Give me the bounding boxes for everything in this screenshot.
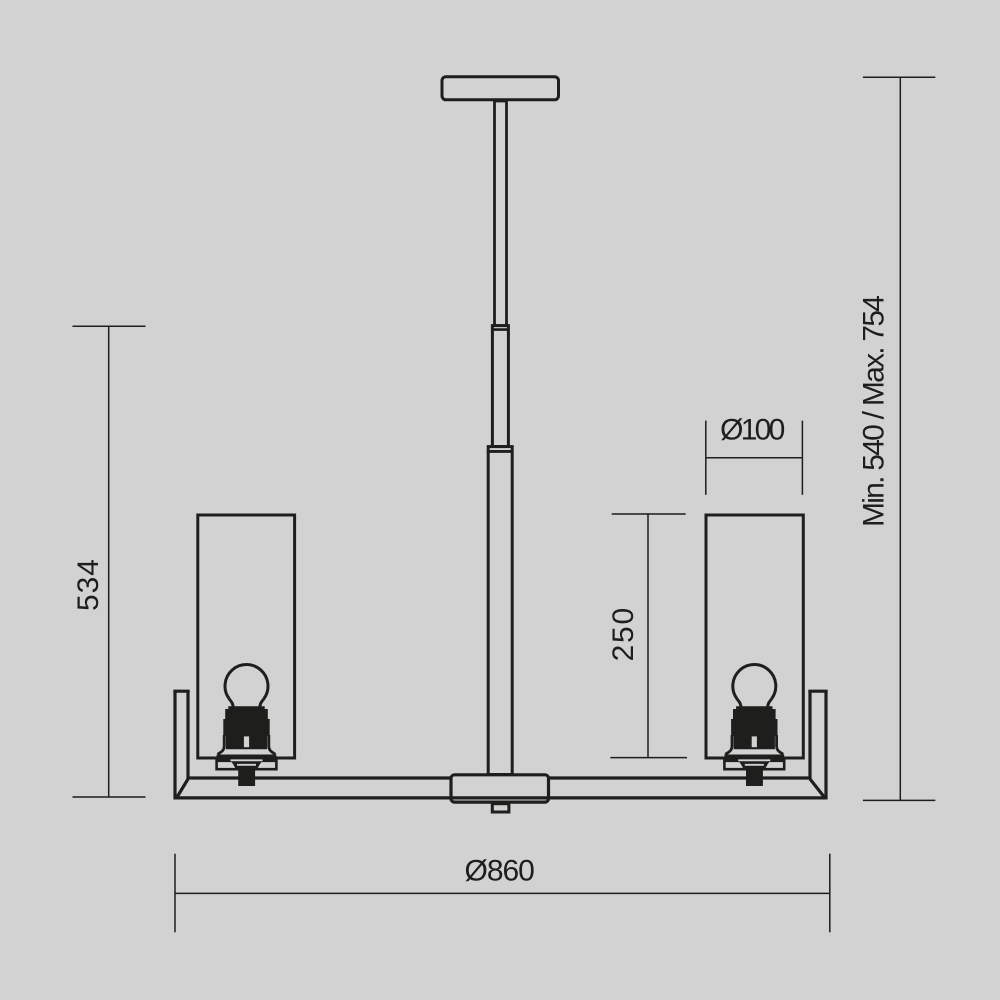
svg-text:534: 534	[72, 559, 105, 611]
svg-text:Ø860: Ø860	[465, 854, 535, 887]
svg-text:Ø100: Ø100	[720, 413, 785, 446]
svg-text:250: 250	[607, 608, 640, 662]
svg-text:Min. 540 / Max. 754: Min. 540 / Max. 754	[857, 295, 890, 527]
